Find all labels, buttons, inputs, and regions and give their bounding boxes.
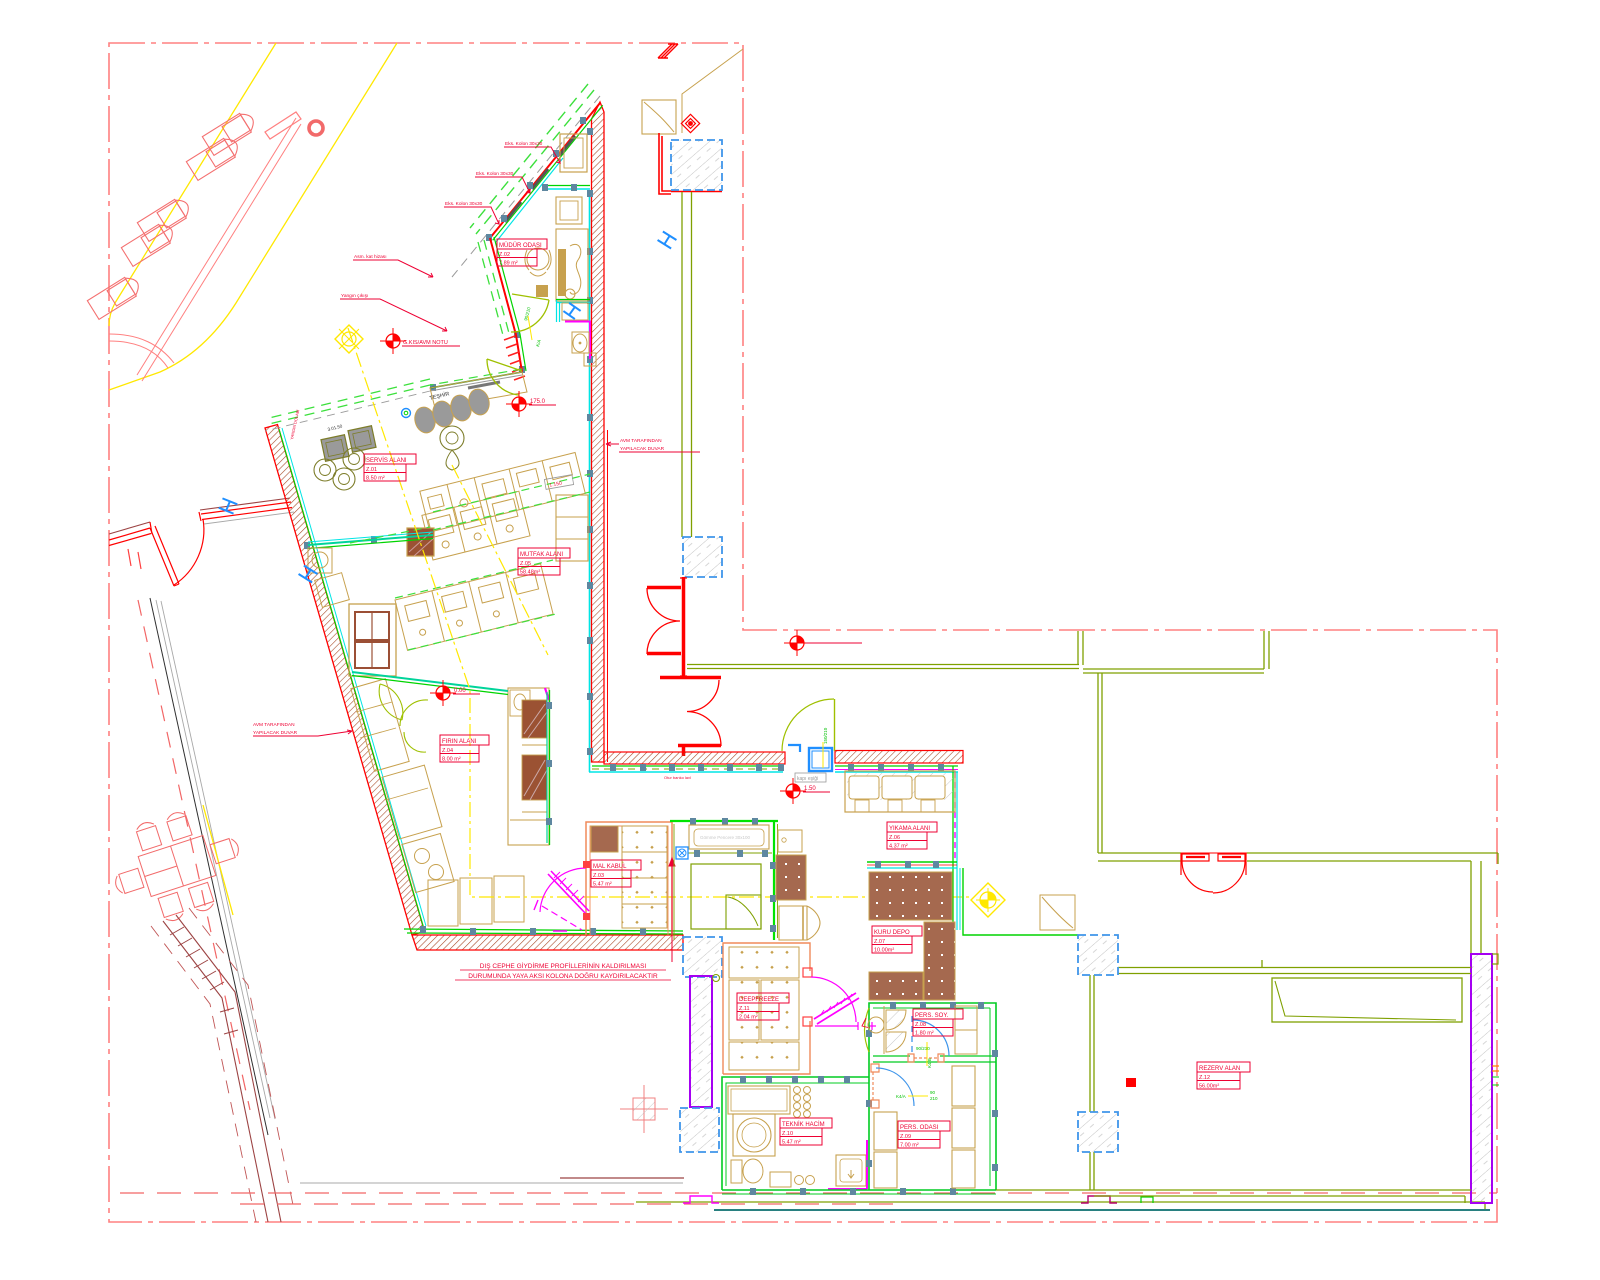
svg-text:PERS. ODASI: PERS. ODASI [900, 1125, 939, 1131]
svg-text:K4/A: K4/A [896, 1094, 906, 1099]
svg-text:YAPILACAK DUVAR: YAPILACAK DUVAR [620, 446, 665, 452]
svg-text:TEKNİK HACİM: TEKNİK HACİM [782, 1121, 825, 1128]
svg-text:REZERV ALAN: REZERV ALAN [1199, 1066, 1240, 1072]
svg-text:MAL KABUL: MAL KABUL [593, 864, 627, 870]
svg-text:8.00 m²: 8.00 m² [442, 757, 461, 763]
svg-text:Z.05: Z.05 [520, 561, 531, 567]
svg-text:PERS. SOY.: PERS. SOY. [915, 1013, 949, 1019]
svg-text:90: 90 [930, 1090, 936, 1095]
svg-text:Z.07: Z.07 [874, 939, 885, 945]
svg-text:YAPILACAK DUVAR: YAPILACAK DUVAR [253, 730, 298, 736]
svg-text:DURUMUNDA YAYA AKSI KOLONA DOĞ: DURUMUNDA YAYA AKSI KOLONA DOĞRU KAYDIRI… [468, 971, 658, 980]
svg-text:4.37 m²: 4.37 m² [889, 844, 908, 850]
svg-text:Yangın çıkışı: Yangın çıkışı [341, 293, 368, 299]
svg-text:56.00m²: 56.00m² [1199, 1084, 1219, 1090]
svg-text:Otur banko lavl: Otur banko lavl [664, 775, 691, 780]
svg-text:SERVİS ALANI: SERVİS ALANI [366, 457, 407, 464]
svg-text:Z.11: Z.11 [739, 1006, 750, 1012]
svg-text:8.50 m²: 8.50 m² [366, 476, 385, 482]
svg-text:150/210: 150/210 [823, 727, 828, 744]
svg-text:KURU DEPO: KURU DEPO [874, 930, 910, 936]
svg-text:K4/B: K4/B [927, 1058, 932, 1068]
svg-text:1.80 m²: 1.80 m² [915, 1031, 934, 1037]
svg-text:AVM TARAFINDAN: AVM TARAFINDAN [620, 438, 662, 444]
svg-text:DIŞ CEPHE GİYDİRME PROFİLLERİN: DIŞ CEPHE GİYDİRME PROFİLLERİNİN KALDIRI… [480, 961, 647, 970]
svg-text:MÜDÜR ODASI: MÜDÜR ODASI [499, 242, 542, 249]
svg-text:AVM TARAFINDAN: AVM TARAFINDAN [253, 722, 295, 728]
svg-text:MUTFAK ALANI: MUTFAK ALANI [520, 552, 563, 558]
svg-text:Gömme Pencere 30x100: Gömme Pencere 30x100 [700, 835, 751, 840]
svg-text:Z.01: Z.01 [366, 467, 377, 473]
svg-text:1.50: 1.50 [804, 786, 816, 792]
svg-text:2.04 m²: 2.04 m² [739, 1015, 758, 1021]
svg-text:G.KIS/AVM NOTU: G.KIS/AVM NOTU [403, 340, 448, 346]
svg-text:7.89 m²: 7.89 m² [499, 261, 518, 267]
svg-text:Eks. Kolon 30x30: Eks. Kolon 30x30 [476, 171, 514, 177]
svg-text:Z.10: Z.10 [782, 1131, 793, 1137]
svg-text:5.47 m²: 5.47 m² [593, 882, 612, 888]
svg-text:210: 210 [930, 1096, 938, 1101]
svg-text:90/210: 90/210 [916, 1046, 930, 1051]
svg-text:Z.04: Z.04 [442, 748, 453, 754]
svg-text:Z.08: Z.08 [915, 1022, 926, 1028]
svg-text:Asm. kat hizası: Asm. kat hizası [354, 254, 387, 260]
svg-text:YIKAMA ALANI: YIKAMA ALANI [889, 826, 930, 832]
svg-text:Z.09: Z.09 [900, 1134, 911, 1140]
svg-text:7.00 m²: 7.00 m² [900, 1143, 919, 1149]
svg-text:Z.03: Z.03 [593, 873, 604, 879]
svg-text:kapı eşiği: kapı eşiği [797, 776, 818, 782]
svg-text:Eks. Kolon 30x30: Eks. Kolon 30x30 [445, 201, 483, 207]
svg-text:58.48m²: 58.48m² [520, 570, 540, 576]
svg-text:Eks. Kolon 30x30: Eks. Kolon 30x30 [505, 141, 543, 147]
svg-text:Z.06: Z.06 [889, 835, 900, 841]
svg-text:Z.12: Z.12 [1199, 1075, 1210, 1081]
svg-text:175.0: 175.0 [530, 399, 546, 405]
svg-text:FIRIN ALANI: FIRIN ALANI [442, 739, 477, 745]
svg-text:10.00m²: 10.00m² [874, 948, 894, 954]
svg-text:DEEPFREEZE: DEEPFREEZE [739, 997, 779, 1003]
svg-text:Z.02: Z.02 [499, 252, 510, 258]
svg-text:5.47 m²: 5.47 m² [782, 1140, 801, 1146]
svg-text:0.00: 0.00 [454, 688, 466, 694]
